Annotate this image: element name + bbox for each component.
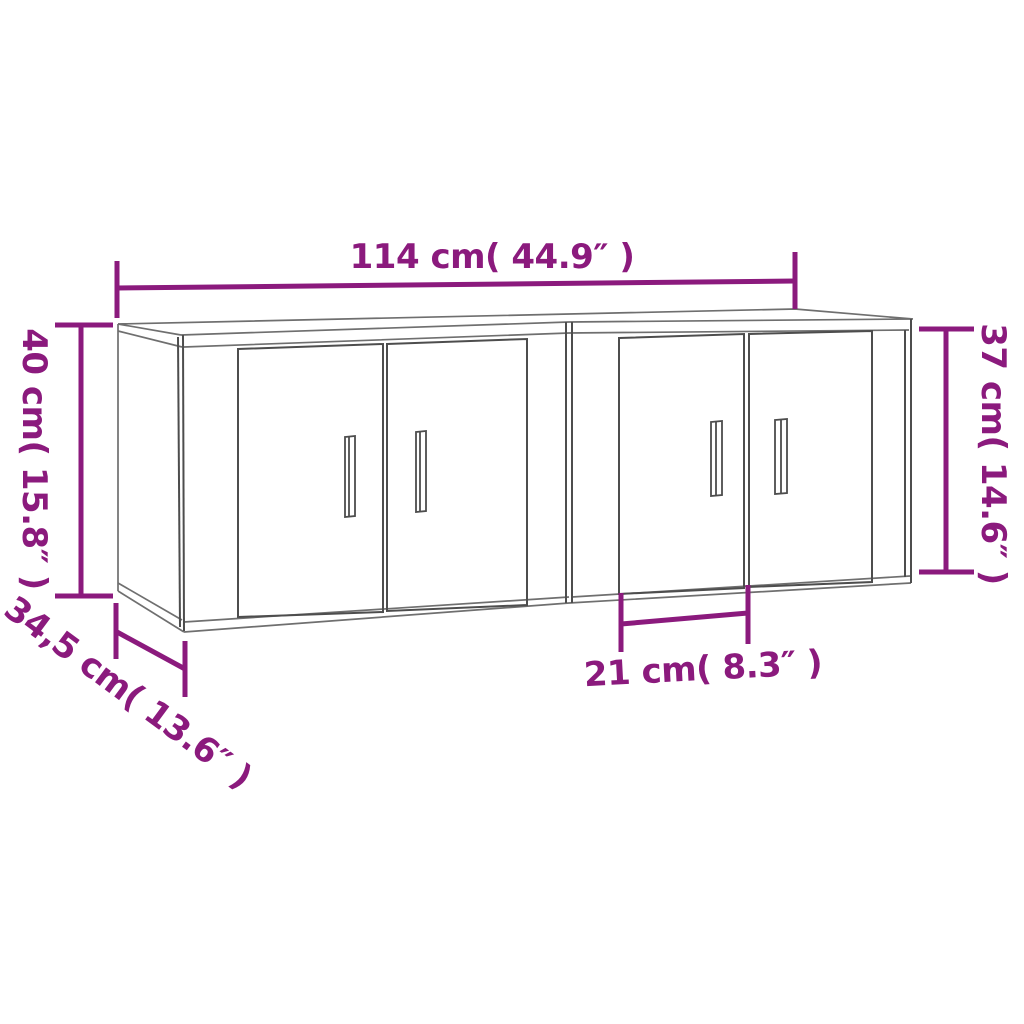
right-height-label: 37 cm( 14.6″ ) bbox=[973, 323, 1013, 585]
left-height-label: 40 cm( 15.8″ ) bbox=[14, 328, 54, 590]
cabinet-line-art bbox=[0, 0, 1024, 1024]
front-left-edge-outer bbox=[183, 335, 184, 631]
right-height-dimension-line bbox=[919, 329, 974, 572]
overall-width-label: 114 cm( 44.9″ ) bbox=[350, 237, 635, 277]
dimension-diagram: 114 cm( 44.9″ ) 40 cm( 15.8″ ) 37 cm( 14… bbox=[0, 0, 1024, 1024]
left-height-dimension-line bbox=[55, 325, 113, 596]
